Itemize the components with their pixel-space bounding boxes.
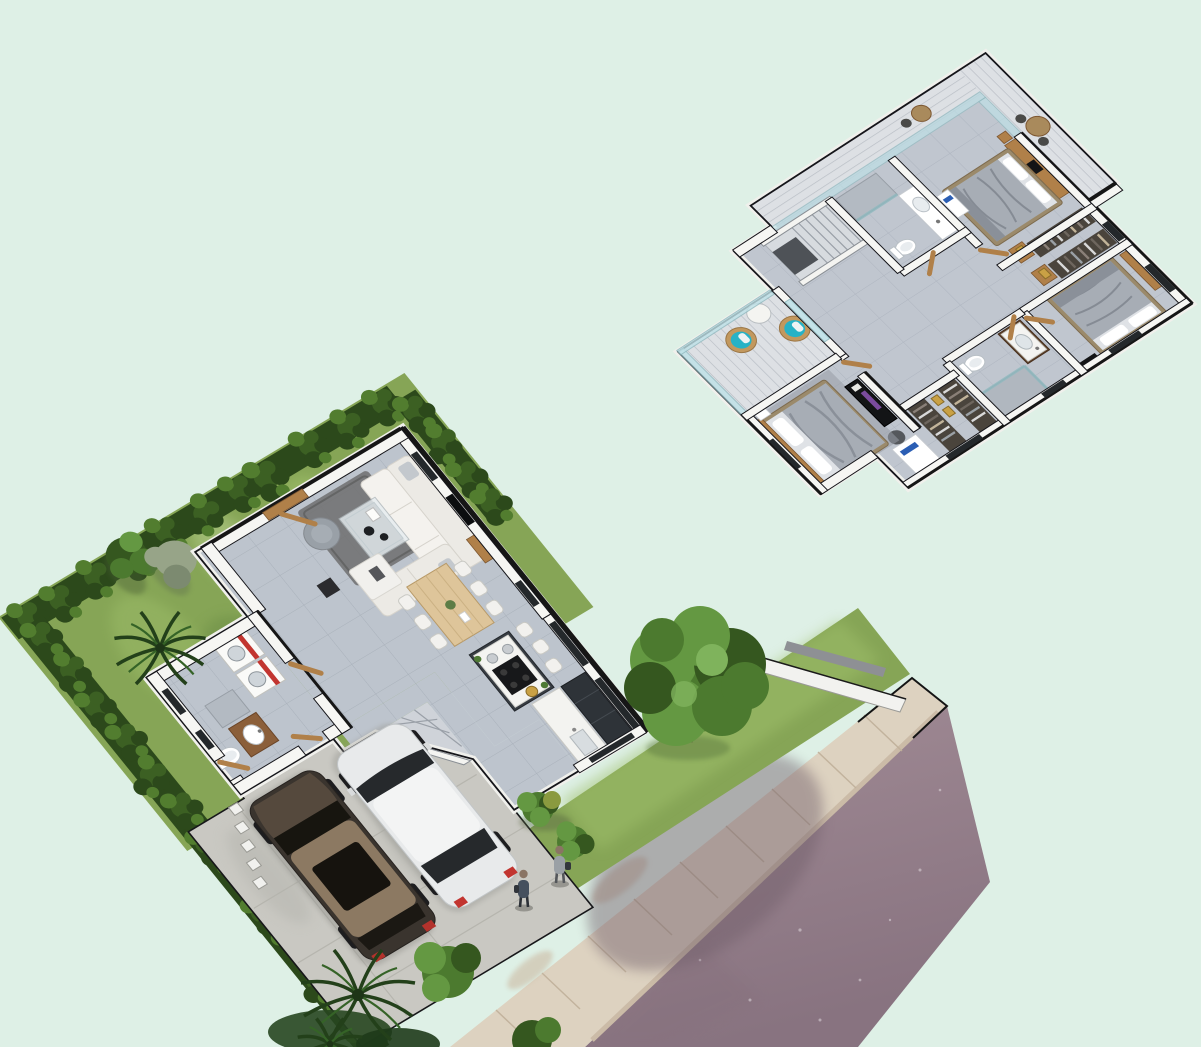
first-floor-plan bbox=[617, 53, 1201, 526]
floorplan-render bbox=[0, 0, 1201, 1047]
render-canvas bbox=[0, 0, 1201, 1047]
